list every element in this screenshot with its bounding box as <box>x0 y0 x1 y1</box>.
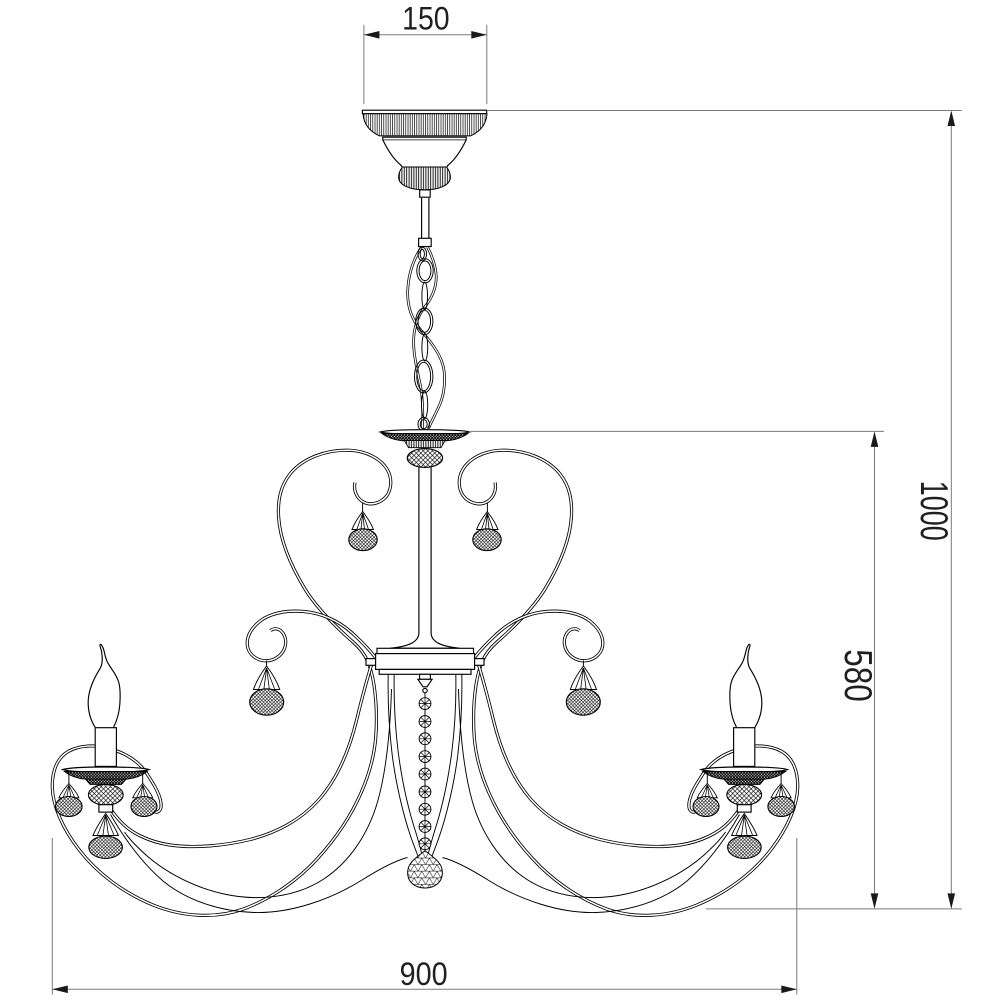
svg-text:900: 900 <box>400 956 448 992</box>
svg-text:150: 150 <box>402 1 450 37</box>
svg-text:580: 580 <box>836 649 879 702</box>
svg-text:1000: 1000 <box>912 481 955 541</box>
